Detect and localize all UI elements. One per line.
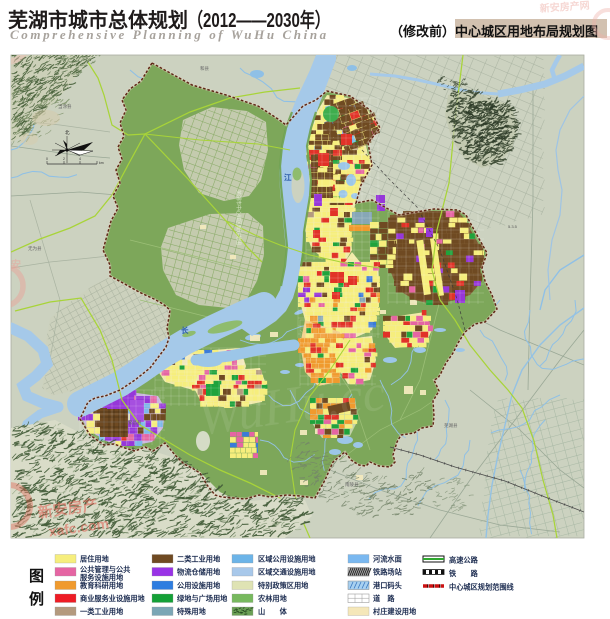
svg-text:芜湖县: 芜湖县 [444, 422, 458, 429]
svg-text:教育科研用地: 教育科研用地 [79, 581, 124, 590]
svg-text:区域公用设施用地: 区域公用设施用地 [258, 555, 316, 564]
svg-text:新安: 新安 [1, 258, 21, 271]
svg-text:一类工业用地: 一类工业用地 [80, 607, 124, 616]
svg-text:山 体: 山 体 [258, 607, 288, 616]
svg-text:绿地与广场用地: 绿地与广场用地 [177, 594, 228, 603]
svg-text:道 路: 道 路 [373, 594, 395, 603]
svg-text:北: 北 [65, 129, 70, 136]
svg-text:当涂县: 当涂县 [58, 103, 72, 110]
svg-text:和县: 和县 [200, 65, 209, 72]
svg-text:商业服务业设施用地: 商业服务业设施用地 [80, 594, 146, 603]
svg-text:中心城区规划范围线: 中心城区规划范围线 [449, 583, 515, 592]
svg-text:区域交通设施用地: 区域交通设施用地 [258, 568, 316, 577]
svg-text:繁昌县: 繁昌县 [128, 419, 142, 426]
svg-text:港口码头: 港口码头 [373, 581, 402, 590]
svg-text:芜湖市中心城区规划范围: 芜湖市中心城区规划范围 [235, 190, 242, 245]
svg-text:铁路场站: 铁路场站 [373, 568, 403, 577]
svg-text:村庄建设用地: 村庄建设用地 [372, 607, 417, 616]
svg-text:特殊用地: 特殊用地 [177, 607, 207, 616]
svg-text:新安房产网: 新安房产网 [539, 0, 590, 15]
svg-text:长: 长 [181, 325, 189, 335]
svg-text:图: 图 [29, 568, 44, 585]
svg-text:江: 江 [284, 172, 292, 182]
svg-text:5.3.5: 5.3.5 [508, 224, 518, 229]
svg-text:二类工业用地: 二类工业用地 [177, 555, 221, 564]
svg-text:特别政策区用地: 特别政策区用地 [258, 581, 309, 590]
svg-text:铁 路: 铁 路 [449, 569, 479, 578]
svg-text:物流仓储用地: 物流仓储用地 [177, 568, 221, 577]
svg-text:0: 0 [46, 157, 48, 161]
svg-text:例: 例 [29, 590, 44, 608]
svg-text:4: 4 [79, 157, 81, 161]
svg-text:农林用地: 农林用地 [257, 594, 288, 603]
svg-text:河流水面: 河流水面 [373, 555, 402, 564]
svg-text:km: km [99, 161, 104, 165]
svg-text:公用设施用地: 公用设施用地 [177, 581, 221, 590]
svg-text:2: 2 [63, 157, 65, 161]
svg-text:居住用地: 居住用地 [80, 555, 110, 564]
svg-text:南陵县: 南陵县 [345, 481, 359, 488]
svg-text:高速公路: 高速公路 [449, 556, 479, 565]
svg-text:无为县: 无为县 [28, 245, 42, 252]
